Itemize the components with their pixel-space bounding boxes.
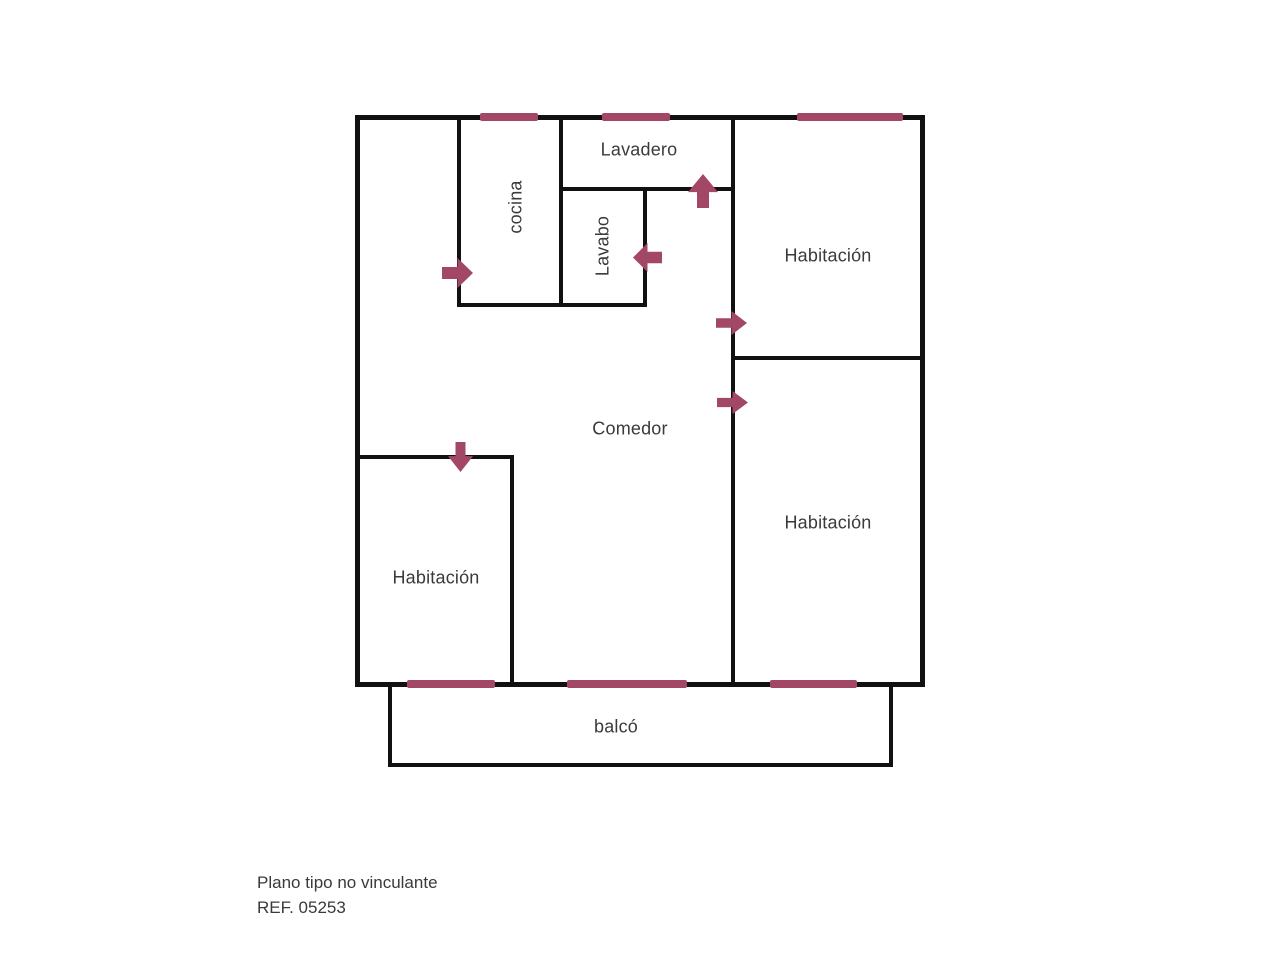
door-lavabo-left-arrow-icon <box>633 243 662 272</box>
floorplan-page: LavaderococinaLavaboHabitaciónComedorHab… <box>0 0 1280 960</box>
wall-left-habitacion-top <box>355 455 514 459</box>
label-habitacion-bottom-right: Habitación <box>784 513 871 534</box>
plan-footer: Plano tipo no vinculante REF. 05253 <box>257 870 438 920</box>
door-lavadero-up-arrow-icon <box>688 174 718 208</box>
wall-balcony-bottom <box>388 763 893 767</box>
window-cocina-marker <box>480 113 538 121</box>
label-comedor: Comedor <box>592 419 667 440</box>
window-lavadero-marker <box>602 113 670 121</box>
wall-habitacion-divider <box>731 356 925 360</box>
window-habitacion-top-marker <box>797 113 903 121</box>
wall-balcony-left <box>388 687 392 767</box>
wall-left-habitacion-right <box>510 455 514 687</box>
wall-cocina-right <box>559 115 563 307</box>
window-habitacion-left-marker <box>407 680 495 688</box>
door-cocina-right-arrow-icon <box>442 258 473 288</box>
door-habitacion-bottom-right-arrow-icon <box>717 391 748 414</box>
label-habitacion-left: Habitación <box>392 568 479 589</box>
wall-outer-right <box>920 115 925 687</box>
door-habitacion-left-down-arrow-icon <box>448 442 473 472</box>
wall-outer-left <box>355 115 360 687</box>
label-cocina: cocina <box>506 180 527 233</box>
wall-cocina-lavabo-bottom <box>457 303 647 307</box>
window-comedor-marker <box>567 680 687 688</box>
wall-balcony-right <box>889 687 893 767</box>
label-balco: balcó <box>594 717 638 738</box>
label-lavabo: Lavabo <box>593 216 614 276</box>
label-habitacion-top-right: Habitación <box>784 246 871 267</box>
reference-number: REF. 05253 <box>257 895 438 920</box>
window-habitacion-bottom-marker <box>770 680 857 688</box>
label-lavadero: Lavadero <box>601 140 678 161</box>
door-habitacion-top-right-arrow-icon <box>716 311 747 335</box>
disclaimer-text: Plano tipo no vinculante <box>257 870 438 895</box>
